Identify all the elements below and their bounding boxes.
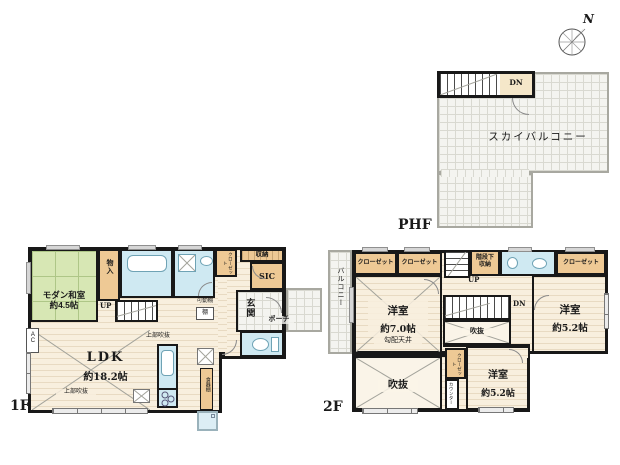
sloped-ceiling-label: 勾配天井 bbox=[374, 337, 422, 345]
room70-name: 洋室 bbox=[388, 305, 409, 317]
f1-floor-label: 1F bbox=[10, 398, 30, 414]
stove-burners-icon bbox=[160, 391, 176, 407]
stair-storage-line2: 収納 bbox=[479, 262, 491, 268]
floor-hatch-icon bbox=[133, 389, 150, 403]
refrigerator-space-icon bbox=[197, 348, 214, 365]
ac-label: AC bbox=[29, 332, 36, 344]
window bbox=[362, 247, 388, 252]
f1-stairs-up bbox=[115, 300, 158, 322]
washitsu-name: モダン和室 bbox=[43, 290, 86, 300]
bathtub-icon bbox=[127, 255, 167, 272]
f1-hall-closet: クローゼット bbox=[215, 249, 237, 277]
f2-closet-d: クローゼット bbox=[445, 348, 466, 379]
stair-storage-label: 階段下 収納 bbox=[472, 255, 498, 269]
f2-void-large: 吹抜 bbox=[354, 356, 442, 410]
f1-ldk-void-label: 上部吹抜 bbox=[56, 389, 96, 396]
f1-washitsu-label: モダン和室 約4.5帖 bbox=[30, 291, 98, 311]
f2-up-label: UP bbox=[468, 276, 479, 284]
f2-closet-c: クローゼット bbox=[556, 252, 606, 275]
shelf-label: 棚 bbox=[197, 310, 213, 317]
water-heater-dot bbox=[211, 414, 215, 418]
shuno-label: 収納 bbox=[240, 251, 284, 258]
window bbox=[26, 262, 31, 294]
void-small-label: 吹抜 bbox=[462, 328, 492, 336]
room70-size: 約7.0帖 bbox=[380, 324, 416, 335]
closet-b-label: クローゼット bbox=[399, 260, 440, 267]
ldk-size: 約18.2帖 bbox=[83, 372, 127, 383]
window-ldk-south bbox=[52, 408, 148, 414]
porch-label: ポーチ bbox=[264, 316, 294, 324]
f2-stair-storage: 階段下 収納 bbox=[470, 250, 500, 276]
balcony-label: バルコニー bbox=[336, 267, 344, 307]
compass-north-label: N bbox=[583, 13, 594, 27]
phf-balcony-seam bbox=[441, 169, 529, 177]
f2-toilet-room bbox=[500, 250, 556, 276]
room52b-size: 約5.2帖 bbox=[481, 389, 515, 399]
f1-kitchen-counter bbox=[157, 344, 178, 408]
room70-label: 洋室 約7.0帖 bbox=[368, 300, 428, 337]
toilet-tank-icon bbox=[271, 337, 279, 352]
window bbox=[178, 245, 202, 250]
f2-room52-top: 洋室 約5.2帖 bbox=[532, 275, 608, 354]
f1-porch bbox=[286, 288, 322, 332]
f1-closet-label: クローゼット bbox=[223, 252, 233, 275]
window bbox=[478, 407, 514, 413]
closet-c-label: クローゼット bbox=[558, 260, 604, 267]
room52a-name: 洋室 bbox=[560, 304, 581, 316]
monoire-label: 物入 bbox=[105, 259, 113, 275]
phf-stair-cut-line bbox=[440, 74, 532, 95]
f2-toilet-bowl-icon bbox=[532, 258, 547, 269]
room52b-name: 洋室 bbox=[488, 370, 508, 381]
f2-floor-label: 2F bbox=[323, 399, 343, 415]
window bbox=[404, 247, 430, 252]
floorplan-sheet: N スカイバルコニー DN PHF モダン和室 約4.5帖 物入 クローゼット … bbox=[0, 0, 620, 465]
f2-counter: カウンター bbox=[445, 379, 459, 410]
phf-stairs: DN bbox=[437, 71, 535, 98]
window bbox=[128, 245, 156, 250]
void-large-label: 吹抜 bbox=[378, 380, 418, 392]
f2-washbasin-icon bbox=[507, 257, 518, 269]
f1-up-label: UP bbox=[100, 302, 111, 310]
f2-closet-b: クローゼット bbox=[397, 252, 442, 275]
f1-washitsu-room bbox=[30, 249, 98, 322]
window bbox=[362, 408, 418, 414]
f1-cupboard: 食器棚 bbox=[200, 368, 213, 410]
toilet-bowl-icon bbox=[252, 338, 269, 351]
washitsu-size: 約4.5帖 bbox=[50, 300, 79, 310]
window bbox=[26, 352, 31, 394]
washing-machine-icon bbox=[178, 254, 196, 272]
sky-balcony-label: スカイバルコニー bbox=[468, 131, 608, 143]
f1-shelf-box: 棚 bbox=[196, 307, 214, 320]
movable-shelf-label: 可動棚 bbox=[192, 298, 218, 304]
washbasin-icon bbox=[200, 256, 213, 266]
closet-a-label: クローゼット bbox=[356, 260, 395, 267]
f1-toilet-room bbox=[240, 331, 284, 357]
window bbox=[508, 247, 532, 252]
window bbox=[565, 247, 595, 252]
room52b-label: 洋室 約5.2帖 bbox=[471, 364, 525, 401]
genkan-label: 玄関 bbox=[245, 298, 255, 318]
kitchen-sink-icon bbox=[161, 350, 174, 376]
f2-closet-a: クローゼット bbox=[354, 252, 397, 275]
window bbox=[46, 245, 80, 250]
closet-d-label: クローゼット bbox=[452, 351, 462, 377]
f1-monoire-closet: 物入 bbox=[98, 249, 120, 301]
counter-label: カウンター bbox=[449, 382, 454, 405]
f2-stairs-up bbox=[444, 250, 470, 278]
f1-bathroom bbox=[120, 249, 173, 298]
compass-rose-icon bbox=[555, 24, 591, 60]
water-heater-icon bbox=[197, 411, 218, 431]
room52a-size: 約5.2帖 bbox=[552, 323, 588, 334]
kitchen-divider bbox=[157, 388, 178, 390]
ac-unit: AC bbox=[26, 328, 39, 353]
stair-storage-line1: 階段下 bbox=[476, 255, 494, 261]
room52a-label: 洋室 約5.2帖 bbox=[542, 299, 598, 336]
phf-floor-label: PHF bbox=[398, 217, 432, 233]
f2-stairs-dn bbox=[443, 295, 511, 320]
f2-dn-label: DN bbox=[513, 300, 525, 308]
window-balcony-door bbox=[349, 287, 354, 323]
f2-void-small: 吹抜 bbox=[443, 320, 511, 345]
phf-sky-balcony-lower bbox=[437, 173, 533, 228]
cupboard-label: 食器棚 bbox=[204, 377, 210, 392]
ldk-name: LDK bbox=[87, 350, 125, 365]
window bbox=[604, 293, 609, 329]
f1-ldk-label: LDK 約18.2帖 bbox=[58, 347, 153, 384]
